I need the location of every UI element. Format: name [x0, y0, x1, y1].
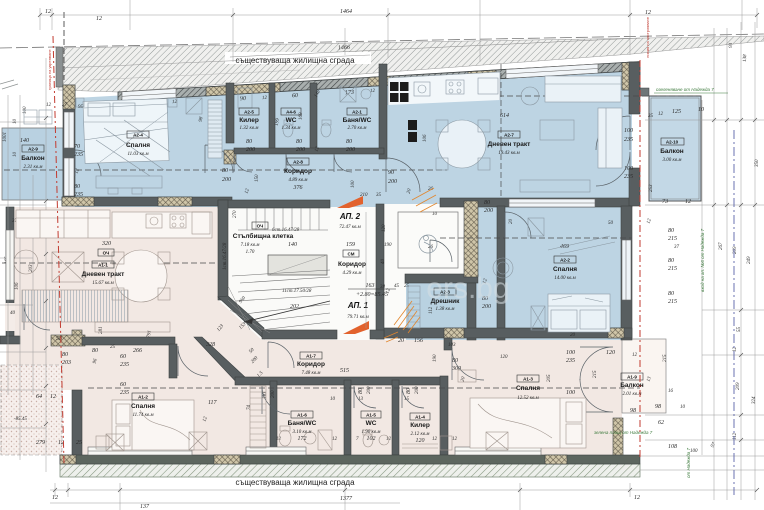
svg-text:3.00 кв.м: 3.00 кв.м	[663, 158, 683, 163]
svg-text:А2-2: А2-2	[560, 258, 570, 263]
svg-text:60: 60	[292, 93, 298, 99]
svg-text:10: 10	[680, 405, 686, 410]
svg-text:А2-10: А2-10	[666, 140, 679, 145]
svg-text:40: 40	[10, 311, 16, 316]
svg-text:60: 60	[120, 382, 126, 388]
svg-text:4.29 кв.м: 4.29 кв.м	[343, 271, 363, 276]
svg-text:45: 45	[394, 284, 400, 289]
svg-text:11ст.17.50/28: 11ст.17.50/28	[282, 289, 312, 294]
svg-text:Коридор: Коридор	[284, 168, 312, 175]
svg-text:200: 200	[346, 147, 355, 153]
svg-text:12: 12	[432, 437, 438, 442]
svg-text:95: 95	[78, 105, 84, 110]
svg-text:190: 190	[384, 243, 392, 248]
svg-text:376: 376	[293, 185, 303, 191]
svg-text:64: 64	[36, 393, 42, 400]
svg-text:2.70 кв.м: 2.70 кв.м	[348, 126, 368, 131]
svg-text:90: 90	[388, 170, 394, 176]
svg-text:2.31 кв.м: 2.31 кв.м	[24, 165, 44, 170]
svg-text:90: 90	[240, 96, 246, 102]
svg-text:1ст.16.47/28: 1ст.16.47/28	[223, 242, 228, 270]
svg-text:1.34 кв.м: 1.34 кв.м	[282, 126, 302, 131]
svg-text:граница на укрепване: граница на укрепване	[47, 49, 52, 90]
svg-text:Дневен тракт: Дневен тракт	[488, 141, 531, 148]
svg-text:72.47 кв.м: 72.47 кв.м	[339, 225, 361, 230]
svg-text:12: 12	[96, 16, 102, 22]
svg-text:7.18 кв.м: 7.18 кв.м	[241, 243, 261, 248]
svg-text:14.00 кв.м: 14.00 кв.м	[554, 276, 576, 281]
svg-text:100: 100	[566, 350, 575, 356]
svg-text:235: 235	[74, 192, 83, 198]
svg-text:А1-7: А1-7	[306, 354, 316, 359]
svg-text:40: 40	[381, 259, 386, 265]
svg-text:203: 203	[29, 264, 34, 272]
svg-text:Килер: Килер	[239, 117, 259, 124]
svg-text:140: 140	[20, 137, 29, 144]
svg-text:163: 163	[366, 283, 375, 289]
svg-text:ОЧ: ОЧ	[257, 224, 264, 229]
svg-text:+2.80=85.45: +2.80=85.45	[356, 291, 388, 298]
svg-text:80: 80	[92, 348, 98, 354]
svg-text:СМ: СМ	[348, 252, 355, 257]
svg-text:Баня/WC: Баня/WC	[288, 420, 317, 427]
svg-text:103: 103	[448, 343, 456, 348]
svg-text:10: 10	[13, 152, 18, 158]
svg-text:зелена площ от Надежда 7: зелена площ от Надежда 7	[593, 430, 653, 435]
svg-text:Килер: Килер	[410, 422, 430, 429]
svg-text:120: 120	[500, 355, 508, 360]
svg-text:235: 235	[120, 362, 129, 368]
svg-text:235: 235	[624, 137, 633, 143]
svg-text:12.52 кв.м: 12.52 кв.м	[517, 396, 539, 401]
svg-text:80: 80	[358, 388, 364, 394]
svg-text:80: 80	[484, 200, 490, 206]
svg-text:203: 203	[62, 360, 71, 366]
svg-text:80: 80	[668, 228, 674, 234]
svg-text:279: 279	[36, 440, 45, 446]
svg-text:АП. 2: АП. 2	[339, 212, 361, 221]
svg-text:10: 10	[330, 397, 336, 402]
svg-text:1466: 1466	[338, 44, 350, 52]
svg-text:12: 12	[645, 10, 651, 16]
svg-text:А1-5: А1-5	[366, 413, 376, 418]
svg-text:А2-1: А2-1	[352, 110, 362, 115]
svg-text:20: 20	[398, 338, 404, 344]
svg-text:1.38 кв.м: 1.38 кв.м	[436, 307, 456, 312]
svg-text:100: 100	[566, 390, 575, 396]
svg-text:А2-9: А2-9	[28, 147, 38, 152]
svg-text:102: 102	[367, 436, 376, 442]
svg-text:25: 25	[76, 440, 82, 446]
svg-text:съществуваща жилищна сграда: съществуваща жилищна сграда	[235, 56, 355, 65]
svg-text:70: 70	[74, 144, 80, 150]
svg-text:1.70: 1.70	[246, 250, 255, 255]
svg-text:200: 200	[246, 147, 255, 153]
svg-text:4.89 кв.м: 4.89 кв.м	[289, 178, 309, 183]
svg-text:Спалня: Спалня	[516, 385, 540, 392]
svg-text:112: 112	[429, 306, 434, 314]
svg-text:12: 12	[658, 112, 664, 117]
svg-text:Спалня: Спалня	[553, 266, 577, 273]
svg-text:12: 12	[45, 9, 51, 15]
svg-text:12: 12	[262, 96, 268, 101]
svg-text:12: 12	[452, 437, 458, 442]
svg-text:120: 120	[382, 224, 387, 232]
svg-text:200: 200	[296, 147, 305, 153]
svg-text:80: 80	[406, 388, 412, 394]
svg-text:1377: 1377	[340, 496, 353, 502]
svg-text:35: 35	[648, 114, 654, 119]
svg-text:80: 80	[246, 139, 252, 145]
svg-text:1464: 1464	[340, 8, 352, 15]
svg-text:озеленяване от Надежда 7: озеленяване от Надежда 7	[656, 87, 714, 92]
svg-text:108: 108	[668, 444, 677, 450]
svg-text:АП. 1: АП. 1	[347, 301, 369, 310]
svg-text:12: 12	[685, 199, 691, 205]
svg-text:Балкон: Балкон	[660, 148, 684, 155]
svg-text:Стълбищна клетка: Стълбищна клетка	[233, 232, 294, 240]
svg-text:2.12 кв.м: 2.12 кв.м	[411, 432, 431, 437]
svg-text:80: 80	[296, 139, 302, 145]
svg-text:20: 20	[570, 333, 576, 338]
svg-text:Спалня: Спалня	[126, 142, 150, 149]
svg-text:150: 150	[255, 174, 260, 182]
svg-text:209: 209	[736, 382, 741, 390]
svg-text:215: 215	[663, 354, 668, 362]
svg-text:12: 12	[632, 353, 638, 358]
svg-text:140: 140	[288, 241, 297, 248]
svg-text:80: 80	[668, 258, 674, 264]
svg-text:вход на ап. №6 от Надежда 7: вход на ап. №6 от Надежда 7	[700, 228, 705, 292]
svg-text:съществуваща жилищна сграда: съществуваща жилищна сграда	[235, 478, 355, 487]
svg-text:WC: WC	[286, 117, 297, 124]
svg-text:А4-6: А4-6	[286, 110, 296, 115]
svg-text:200: 200	[271, 390, 276, 398]
svg-text:11.03 кв.м: 11.03 кв.м	[127, 152, 149, 157]
svg-text:10: 10	[698, 107, 704, 113]
svg-text:27: 27	[62, 103, 68, 108]
svg-text:1.32 кв.м: 1.32 кв.м	[240, 126, 260, 131]
svg-text:267: 267	[719, 242, 724, 250]
svg-text:15.67 кв.м: 15.67 кв.м	[92, 281, 114, 286]
svg-text:20: 20	[509, 219, 514, 225]
svg-text:ОЧ: ОЧ	[103, 251, 110, 256]
svg-text:еrs.bg: еrs.bg	[426, 272, 509, 305]
svg-text:200: 200	[484, 208, 493, 214]
svg-text:614: 614	[500, 112, 509, 119]
svg-text:10: 10	[432, 212, 438, 217]
svg-text:А1-2: А1-2	[138, 395, 148, 400]
svg-text:60: 60	[120, 354, 126, 360]
svg-text:11.74 кв.м: 11.74 кв.м	[132, 413, 154, 418]
svg-text:249: 249	[747, 256, 752, 264]
svg-text:35: 35	[376, 193, 382, 198]
svg-text:100: 100	[690, 449, 698, 454]
svg-text:215: 215	[668, 299, 677, 305]
svg-text:120: 120	[416, 438, 425, 444]
svg-text:80: 80	[346, 139, 352, 145]
svg-text:55: 55	[737, 327, 742, 333]
svg-text:235: 235	[120, 390, 129, 396]
svg-text:25: 25	[110, 345, 116, 350]
svg-text:120: 120	[606, 350, 615, 356]
svg-text:156: 156	[414, 338, 423, 344]
svg-text:80: 80	[668, 291, 674, 297]
svg-text:19.43 кв.м: 19.43 кв.м	[498, 151, 520, 156]
svg-text:328: 328	[205, 342, 215, 348]
svg-text:А1-9: А1-9	[627, 375, 637, 380]
svg-text:А1-6: А1-6	[297, 413, 307, 418]
svg-text:37: 37	[674, 245, 680, 250]
svg-text:98: 98	[630, 408, 636, 414]
svg-text:159: 159	[346, 242, 355, 248]
svg-text:3.10 кв.м: 3.10 кв.м	[293, 430, 313, 435]
svg-text:100: 100	[351, 180, 356, 188]
svg-text:Спалня: Спалня	[131, 403, 155, 410]
svg-text:205: 205	[547, 374, 552, 382]
svg-text:235: 235	[566, 358, 575, 364]
svg-text:106: 106	[15, 282, 20, 290]
svg-text:А2-7: А2-7	[504, 133, 514, 138]
svg-text:Балкон: Балкон	[21, 155, 45, 162]
svg-text:235: 235	[624, 174, 633, 180]
svg-text:Коридор: Коридор	[297, 361, 325, 368]
svg-text:138: 138	[743, 54, 748, 62]
svg-text:WC: WC	[366, 420, 377, 427]
svg-text:1.90 кв.м: 1.90 кв.м	[362, 430, 382, 435]
svg-text:50: 50	[608, 221, 614, 226]
svg-text:2.01 кв.м: 2.01 кв.м	[623, 392, 643, 397]
svg-text:1001: 1001	[3, 132, 8, 142]
svg-text:А1-1: А1-1	[98, 263, 108, 268]
svg-text:324: 324	[752, 396, 757, 404]
svg-text:Коридор: Коридор	[338, 261, 366, 268]
svg-text:98: 98	[655, 404, 661, 410]
svg-text:А2-8: А2-8	[293, 160, 303, 165]
svg-text:А2-4: А2-4	[133, 133, 143, 138]
svg-text:200: 200	[367, 386, 372, 394]
svg-text:12: 12	[634, 495, 640, 501]
svg-text:137: 137	[140, 504, 150, 510]
svg-text:линия на застрояване: линия на застрояване	[645, 16, 650, 58]
svg-text:80: 80	[222, 168, 228, 174]
svg-text:80: 80	[62, 352, 68, 358]
svg-text:350: 350	[755, 159, 760, 167]
svg-text:от Надежда 7: от Надежда 7	[686, 447, 691, 478]
svg-text:266: 266	[133, 348, 142, 354]
svg-text:200: 200	[415, 386, 420, 394]
svg-text:А1-3: А1-3	[523, 377, 533, 382]
svg-text:270: 270	[233, 210, 238, 218]
svg-text:62: 62	[658, 420, 664, 426]
svg-text:190: 190	[433, 354, 438, 362]
svg-text:281: 281	[99, 327, 104, 335]
svg-text:-85.45: -85.45	[14, 417, 27, 422]
svg-text:80: 80	[74, 184, 80, 190]
svg-text:215: 215	[668, 266, 677, 272]
svg-text:253: 253	[649, 184, 654, 192]
svg-text:200: 200	[388, 179, 397, 185]
svg-text:12: 12	[50, 394, 56, 400]
svg-text:10: 10	[13, 119, 18, 125]
svg-text:117: 117	[208, 400, 218, 406]
svg-text:25: 25	[404, 284, 410, 289]
svg-text:73: 73	[662, 199, 668, 205]
svg-text:16: 16	[668, 389, 674, 394]
svg-text:Дневен тракт: Дневен тракт	[82, 271, 125, 278]
svg-text:320: 320	[101, 241, 111, 247]
svg-text:7.48 кв.м: 7.48 кв.м	[302, 371, 322, 376]
svg-text:12: 12	[52, 495, 58, 501]
svg-text:200: 200	[222, 177, 231, 183]
svg-text:А2-5: А2-5	[244, 110, 254, 115]
svg-text:12: 12	[46, 103, 52, 108]
svg-text:А1-4: А1-4	[415, 415, 425, 420]
svg-text:125: 125	[672, 109, 681, 115]
svg-text:93: 93	[729, 42, 734, 48]
svg-text:12: 12	[332, 437, 338, 442]
svg-text:172: 172	[298, 436, 307, 442]
svg-text:106: 106	[423, 134, 428, 142]
svg-text:74: 74	[247, 405, 252, 411]
svg-text:215: 215	[593, 370, 598, 378]
svg-text:515: 515	[340, 368, 349, 374]
svg-text:100: 100	[624, 128, 633, 134]
svg-text:Баня/WC: Баня/WC	[343, 117, 372, 124]
svg-text:215: 215	[668, 236, 677, 242]
svg-text:169: 169	[299, 112, 304, 120]
